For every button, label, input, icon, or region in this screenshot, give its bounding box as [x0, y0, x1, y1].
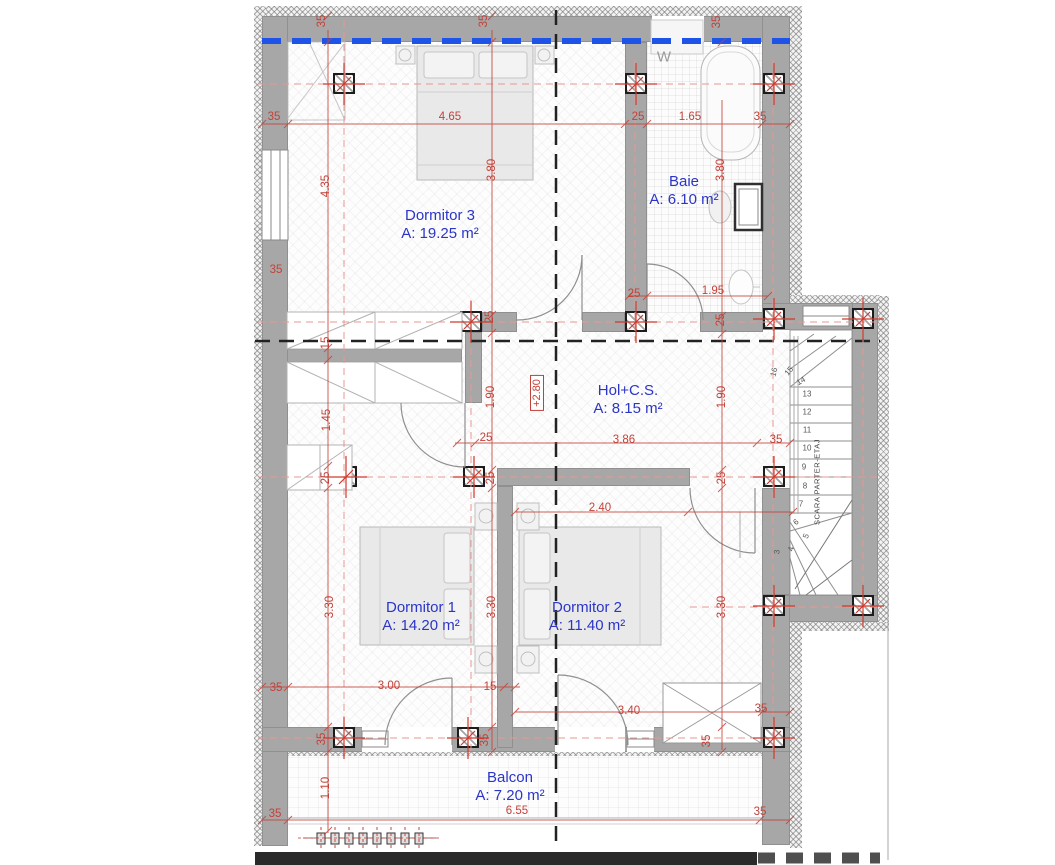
column [763, 466, 785, 487]
floor-balcony [288, 752, 762, 818]
hatch-stair-right [878, 296, 889, 628]
column [625, 311, 647, 332]
column [763, 595, 785, 616]
column [763, 727, 785, 748]
wall-hall-seg-c [700, 312, 763, 332]
column [333, 727, 355, 748]
floor-bathroom [647, 42, 762, 313]
wall-dormitor2-top [497, 468, 690, 486]
opening-balcony-door-2 [555, 727, 625, 752]
bottom-border-bar [255, 852, 757, 865]
opening-window-1 [362, 727, 388, 752]
hatch-right-upper [790, 6, 802, 306]
floor-plan-canvas: W +2.80 SCARA PARTER-ETAJ 353535354.6525… [0, 0, 1055, 865]
wall-right-stair-side [762, 488, 790, 595]
hatch-right-lower [790, 622, 802, 848]
floor-stairwell [790, 330, 852, 595]
wall-center-bedrooms [497, 486, 513, 748]
column [333, 73, 355, 94]
wall-hall-seg-b [582, 312, 625, 332]
wall-closet-right [465, 332, 482, 403]
hatch-stair-bottom [788, 622, 889, 631]
wall-top [262, 16, 790, 42]
column [463, 466, 485, 487]
wall-stair-right [852, 303, 878, 622]
balcony-railing [288, 818, 762, 851]
column [460, 311, 482, 332]
column [457, 727, 479, 748]
washer-niche [652, 16, 704, 43]
wall-right-lower [762, 595, 790, 845]
wall-hall-seg-a [482, 312, 517, 332]
column [763, 308, 785, 329]
wall-left [262, 16, 288, 846]
column [763, 73, 785, 94]
column [852, 308, 874, 329]
column [625, 73, 647, 94]
opening-window-2 [627, 727, 654, 752]
column [335, 466, 357, 487]
column [852, 595, 874, 616]
opening-balcony-door-1 [385, 727, 452, 752]
wall-closet-middle [287, 349, 462, 362]
wall-right-upper [762, 16, 790, 308]
